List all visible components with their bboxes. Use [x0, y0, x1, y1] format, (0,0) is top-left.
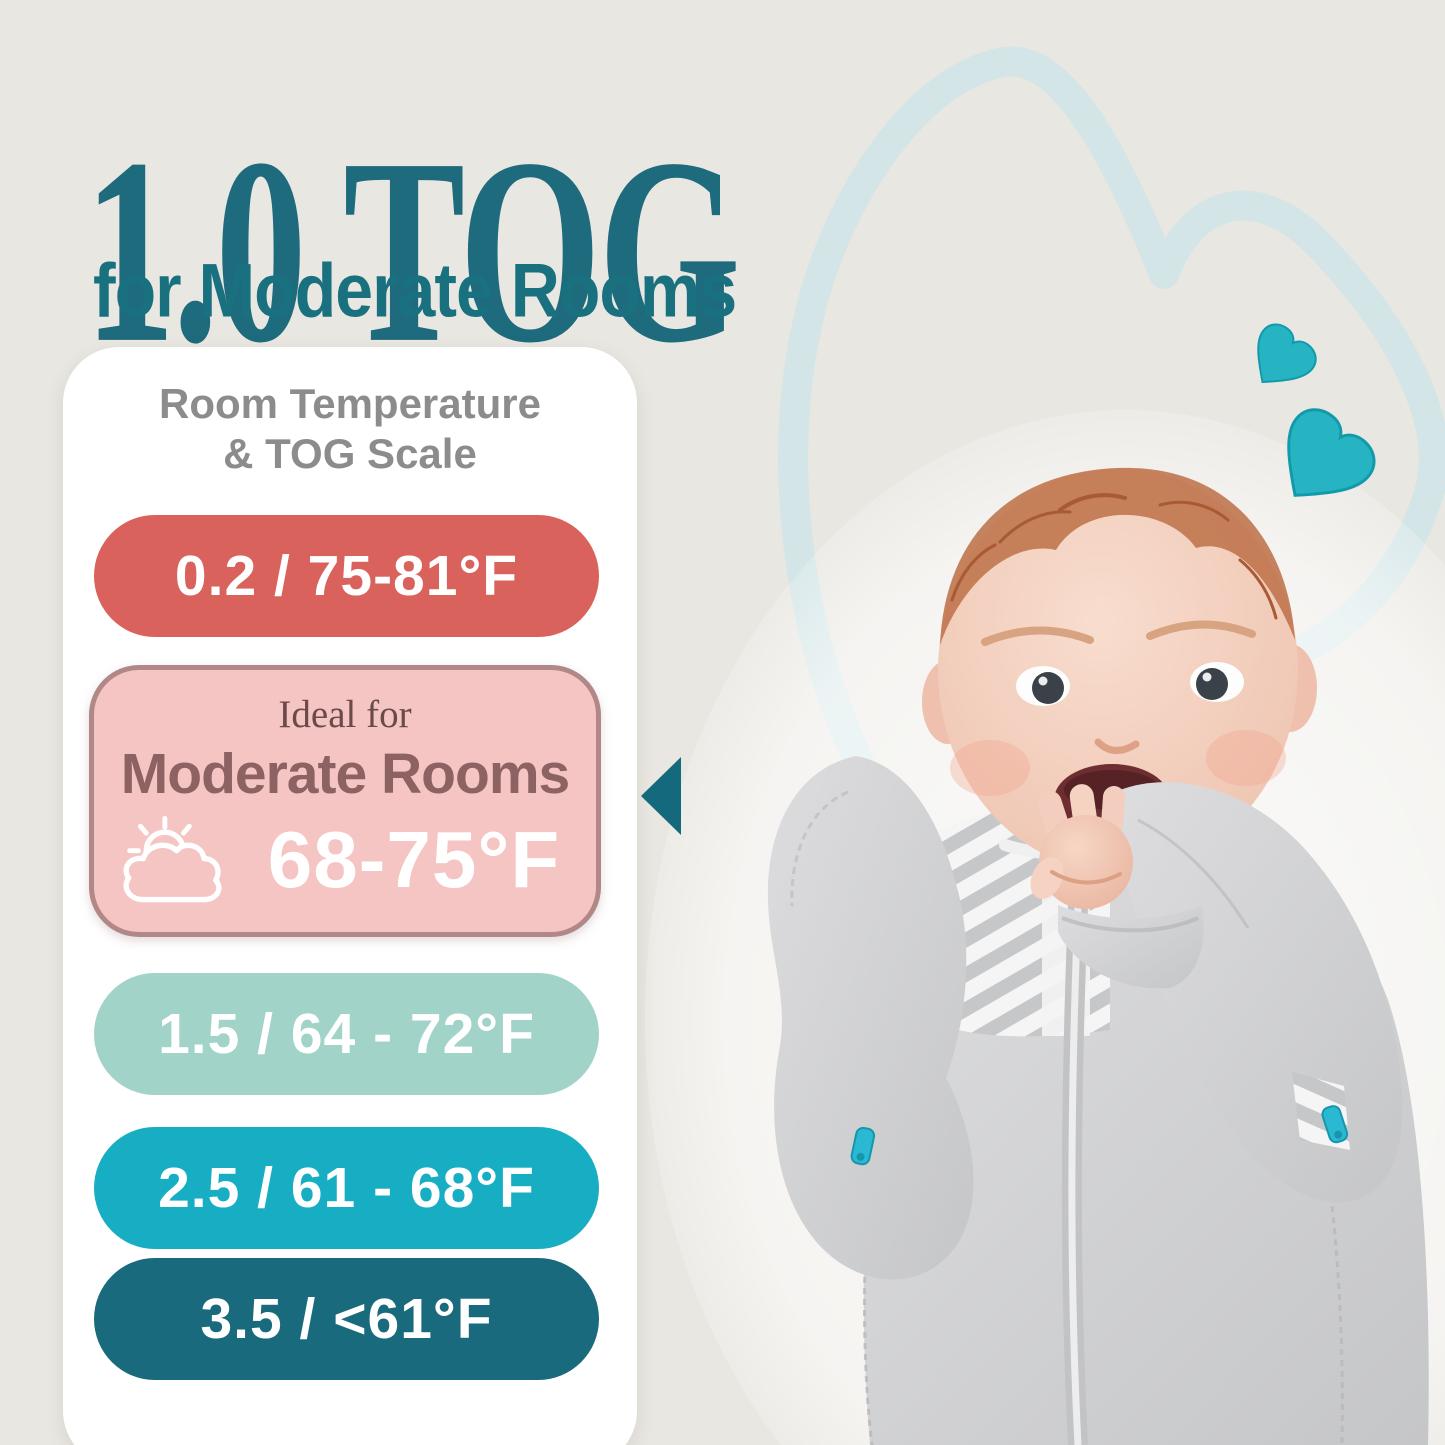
heart-icon-small: [1238, 318, 1322, 401]
tog-row-0-2: 0.2 / 75-81°F: [94, 515, 599, 637]
indicator-arrow-icon: [641, 757, 681, 835]
ideal-intro-label: Ideal for: [94, 692, 596, 737]
card-heading-line1: Room Temperature: [159, 380, 541, 427]
card-heading: Room Temperature & TOG Scale: [63, 379, 637, 480]
tog-row-1-5: 1.5 / 64 - 72°F: [94, 973, 599, 1095]
tog-row-2-5: 2.5 / 61 - 68°F: [94, 1127, 599, 1249]
ideal-temperature: 68-75°F: [268, 814, 560, 906]
tog-scale-card: Room Temperature & TOG Scale 0.2 / 75-81…: [63, 347, 637, 1445]
card-heading-line2: & TOG Scale: [223, 430, 477, 477]
tog-row-ideal-1-0: Ideal for Moderate Rooms 68-75°F: [89, 665, 601, 937]
ideal-room-type: Moderate Rooms: [94, 741, 596, 807]
page-subtitle: for Moderate Rooms: [93, 247, 736, 334]
tog-row-3-5: 3.5 / <61°F: [94, 1258, 599, 1380]
sun-behind-cloud-icon: [114, 813, 246, 907]
zipper: [1072, 905, 1078, 1445]
infographic-page: 1.0 TOG for Moderate Rooms Room Temperat…: [0, 0, 1445, 1445]
ideal-temp-row: 68-75°F: [86, 813, 588, 907]
